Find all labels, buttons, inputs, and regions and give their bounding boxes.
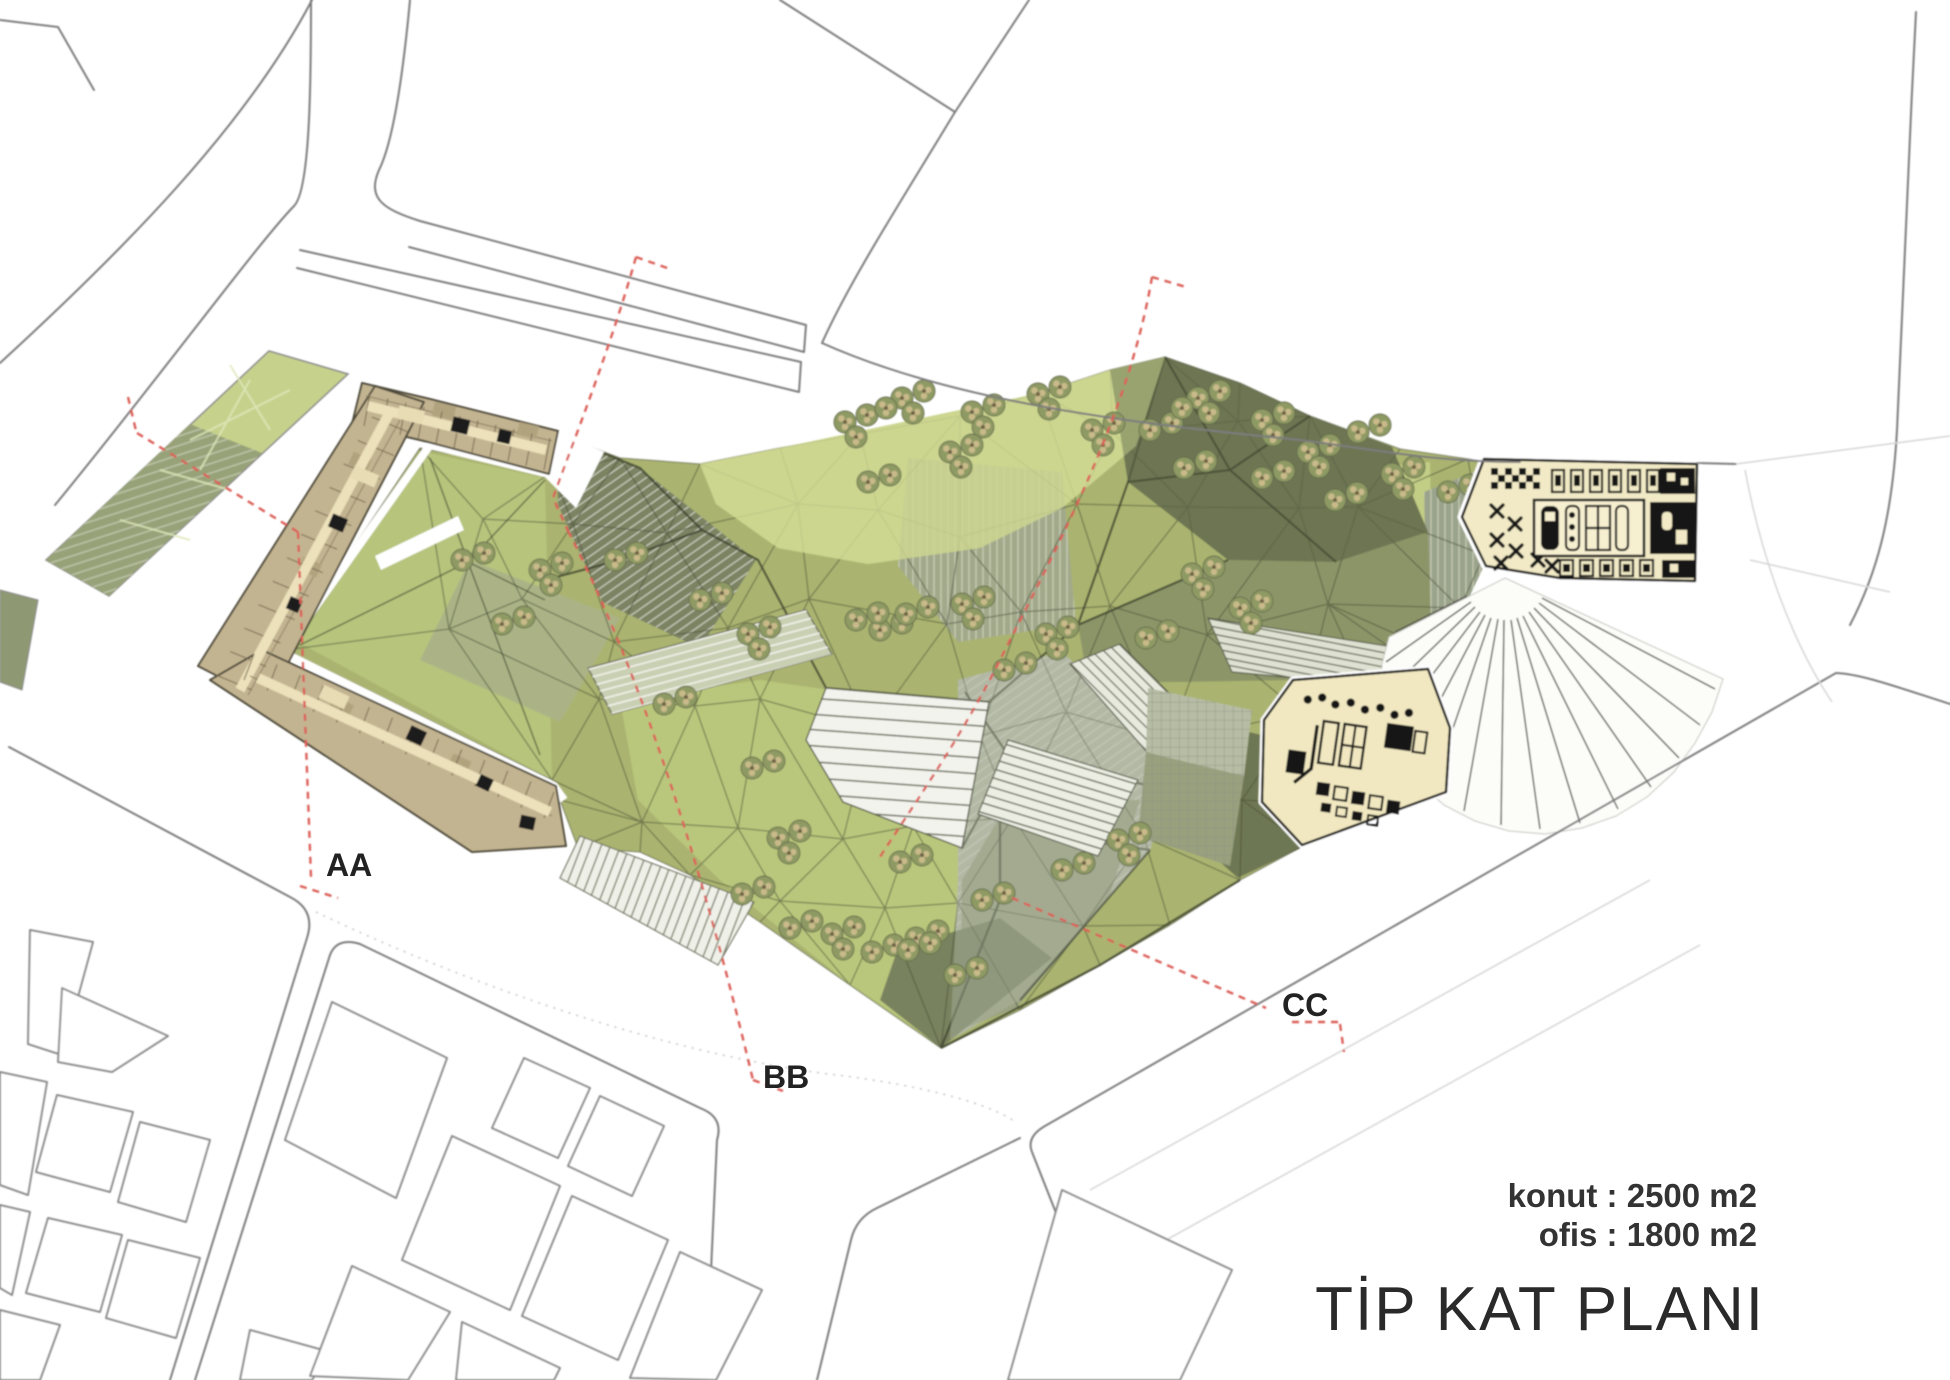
svg-text:konut : 2500 m2: konut : 2500 m2 [1508,1177,1757,1214]
svg-text:TİP KAT PLANI: TİP KAT PLANI [1315,1275,1765,1344]
svg-text:BB: BB [763,1059,809,1095]
svg-text:AA: AA [326,847,372,883]
svg-text:CC: CC [1282,987,1328,1023]
svg-text:ofis : 1800 m2: ofis : 1800 m2 [1539,1216,1757,1253]
